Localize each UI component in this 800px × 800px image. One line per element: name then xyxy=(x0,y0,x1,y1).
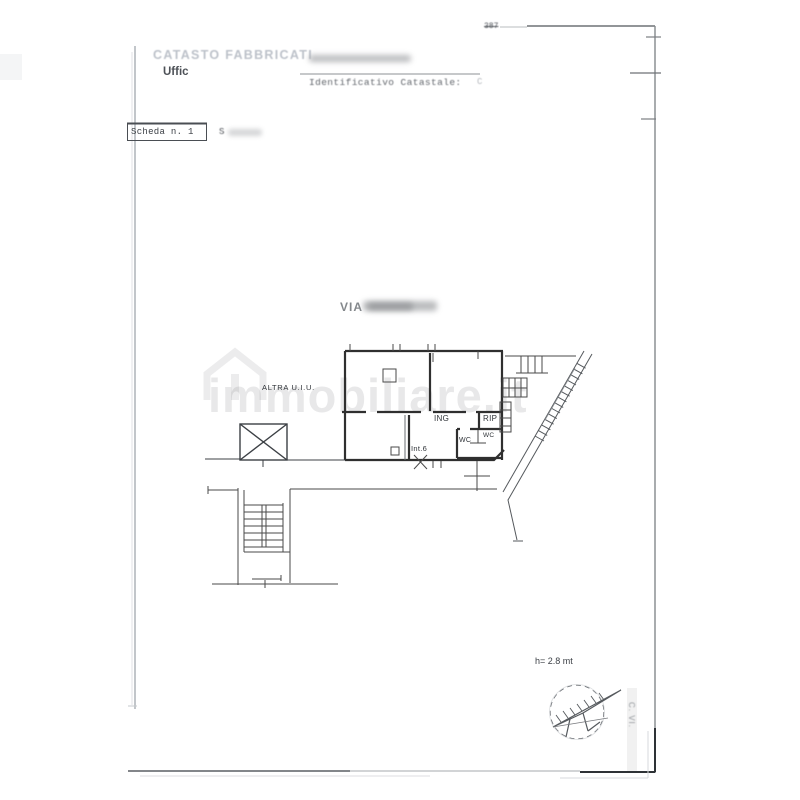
room-label-wc-left: WC xyxy=(459,437,471,444)
margin-note-vertical: C. VI. xyxy=(627,702,636,728)
elevator-shaft xyxy=(205,424,345,467)
cadastral-floorplan-page: immobiliare.it xyxy=(0,0,800,800)
redacted-street-name-dark xyxy=(368,303,413,310)
room-label-rip: RIP xyxy=(483,414,497,423)
office-label: Uffic xyxy=(163,66,189,78)
floor-plan-svg xyxy=(0,0,800,800)
unit-number-label: Int.6 xyxy=(411,444,427,453)
identifier-label: Identificativo Catastale: xyxy=(309,77,462,88)
scheda-label: Scheda n. 1 xyxy=(131,127,194,137)
room-label-altra-uiu: ALTRA U.I.U. xyxy=(262,383,315,392)
compass-rose-icon xyxy=(550,685,622,740)
redacted-scale-value xyxy=(228,129,262,136)
identifier-value: C xyxy=(477,77,482,87)
boundary-diagonal xyxy=(503,351,592,541)
watermark-house-icon xyxy=(207,352,263,400)
lower-staircase xyxy=(208,486,497,588)
ceiling-height-note: h= 2.8 mt xyxy=(535,656,573,666)
right-staircase xyxy=(500,356,576,432)
room-label-wc-right: WC xyxy=(483,432,494,439)
street-label: VIA xyxy=(340,300,363,314)
scale-prefix: S xyxy=(219,127,224,137)
redacted-header-field xyxy=(309,55,411,62)
unit-details xyxy=(350,344,490,491)
document-type-title: CATASTO FABBRICATI xyxy=(153,48,313,62)
page-border xyxy=(128,26,661,778)
page-number-note: 387 xyxy=(484,22,498,31)
room-label-ing: ING xyxy=(434,414,449,423)
